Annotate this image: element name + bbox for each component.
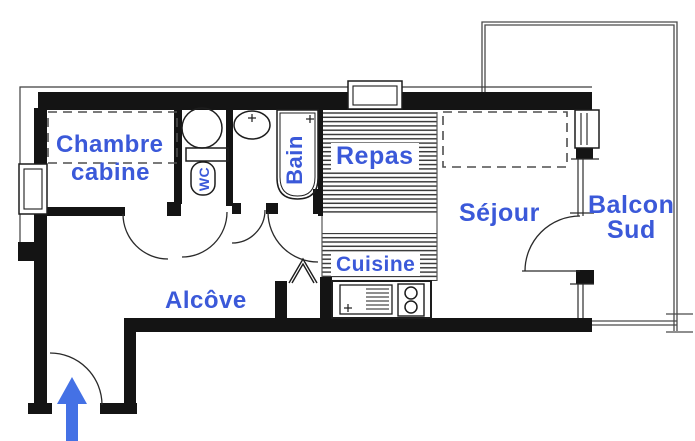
entrance-arrow-icon	[57, 377, 87, 441]
room-label-cuisine: Cuisine	[331, 253, 420, 276]
room-label-sejour: Séjour	[459, 201, 540, 226]
wc-door-arc	[182, 212, 227, 257]
bain-door-arc	[232, 210, 265, 243]
sejour-sofa-outline	[443, 112, 567, 167]
passage-door-arc	[268, 212, 318, 262]
glazing-balcony-wall	[570, 159, 599, 318]
room-label-wc: WC	[196, 162, 212, 196]
room-label-sud: Sud	[607, 218, 656, 243]
wc-shelf	[186, 148, 228, 161]
room-label-chambre: Chambre	[56, 133, 164, 157]
balcony-outline	[482, 22, 693, 332]
room-label-cabine: cabine	[71, 161, 150, 185]
stove-icon	[398, 284, 424, 316]
room-label-repas: Repas	[331, 143, 419, 170]
room-label-bain: Bain	[284, 129, 306, 191]
chambre-door-arc	[123, 214, 168, 259]
water-heater-icon	[182, 108, 222, 148]
floor-plan-linework	[0, 0, 695, 441]
room-label-balcon: Balcon	[588, 193, 674, 218]
folding-door-icon	[289, 259, 317, 283]
floor-plan: Chambre cabine WC Bain Repas Cuisine Séj…	[0, 0, 695, 441]
kitchen-counter	[332, 281, 431, 318]
room-label-alcove: Alcôve	[165, 289, 247, 313]
